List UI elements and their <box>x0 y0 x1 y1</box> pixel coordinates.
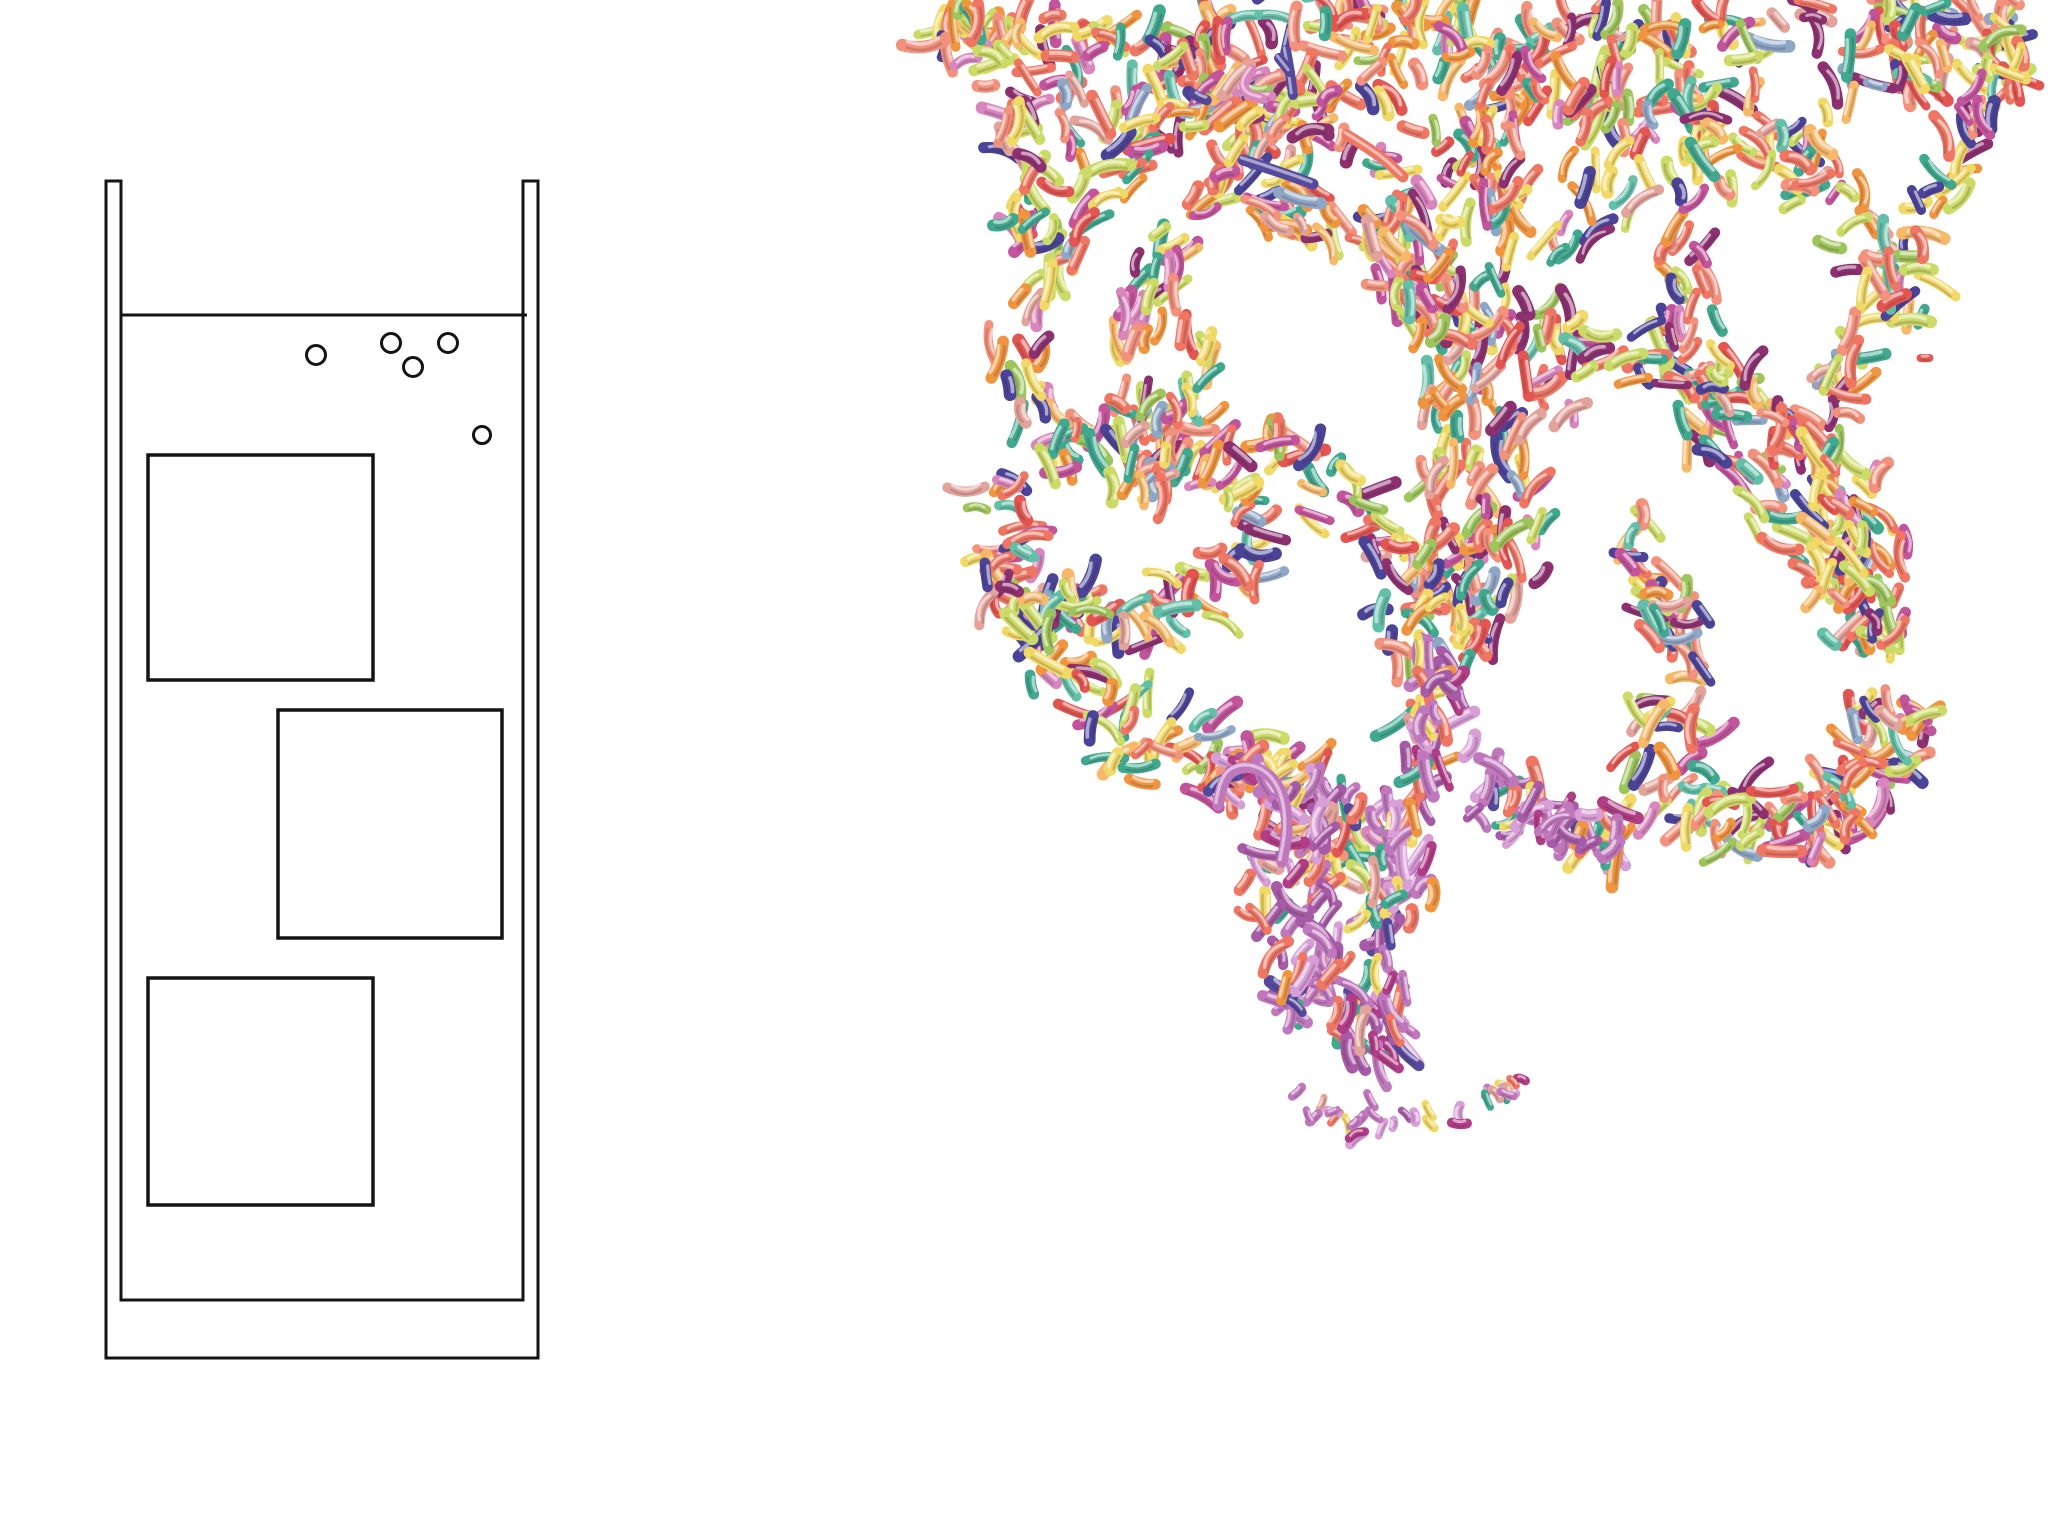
plume-particle <box>1123 762 1156 771</box>
plume-particle <box>1401 974 1409 1003</box>
plume-particle <box>1370 860 1378 903</box>
plume-particle <box>1394 38 1414 46</box>
plume-particle <box>1579 172 1592 203</box>
plume-particle <box>1778 125 1786 148</box>
plume-particle <box>1305 1110 1312 1122</box>
plume-particle <box>1671 673 1704 682</box>
plume-particle <box>1382 950 1390 968</box>
plume-particle <box>1230 49 1244 61</box>
plume-particle <box>1141 330 1149 349</box>
plume-particle <box>1044 13 1061 21</box>
plume-particle <box>1804 15 1823 22</box>
plume-particle <box>1028 675 1036 694</box>
plume-particle <box>1730 54 1758 63</box>
plume-particle <box>1859 526 1866 550</box>
plume-particle <box>1627 527 1637 545</box>
plume-particle <box>1658 724 1679 730</box>
plume-particle <box>1866 725 1875 743</box>
plume-particle <box>1047 53 1074 60</box>
plume-particle <box>1017 340 1030 358</box>
plume-particle <box>1416 637 1422 669</box>
plume-particle <box>1004 376 1013 395</box>
plume-stroke-right-basket <box>1611 689 1942 863</box>
plume-particle <box>1078 153 1087 169</box>
plume-particle <box>1292 1087 1302 1097</box>
plume-particle <box>1918 275 1955 297</box>
plume-particle <box>1763 847 1801 855</box>
plume-particle <box>1284 158 1299 168</box>
plume-particle <box>1624 94 1631 121</box>
plume-particle <box>1260 439 1295 449</box>
plume-particle <box>1406 286 1413 319</box>
viewport-window <box>278 710 502 938</box>
plume-particle <box>1072 175 1086 198</box>
plume-particle <box>1555 105 1562 124</box>
plume-particle <box>1833 516 1842 532</box>
plume-particle <box>1392 281 1401 307</box>
plume-particle <box>1419 461 1429 479</box>
plume-particle <box>1452 1120 1467 1126</box>
plume-particle <box>1675 184 1684 201</box>
plume-particle <box>1361 964 1371 989</box>
plume-particle <box>1206 406 1225 422</box>
plume-particle <box>1428 883 1437 907</box>
plume-particle <box>1386 975 1395 991</box>
plume-particle <box>1850 713 1860 740</box>
plume-particle <box>1483 120 1491 149</box>
plume-particle <box>1199 546 1222 556</box>
plume-particle <box>1366 1093 1375 1107</box>
plume-particle <box>1461 9 1471 41</box>
plume-particle <box>1818 239 1841 250</box>
plume-particle <box>1073 421 1079 438</box>
plume-particle <box>1262 21 1274 43</box>
plume-particle <box>1897 64 1905 86</box>
plume-particle <box>1344 144 1355 162</box>
plume-particle <box>1369 1110 1380 1120</box>
plume-particle <box>1562 150 1575 178</box>
particle-plume-visualization <box>902 0 2039 1145</box>
plume-particle <box>967 505 987 512</box>
plume-particle <box>1905 265 1933 273</box>
plume-particle <box>1668 327 1676 347</box>
plume-particle <box>1441 217 1459 226</box>
bubble-icon <box>474 427 491 444</box>
plume-particle <box>1286 1008 1294 1029</box>
plume-particle <box>1884 0 1893 19</box>
viewport-window <box>148 455 373 680</box>
plume-particle <box>1154 311 1165 341</box>
plume-particle <box>1081 560 1097 592</box>
plume-particle <box>1426 638 1432 673</box>
plume-particle <box>1214 21 1222 60</box>
plume-particle <box>1659 748 1676 774</box>
plume-particle <box>1577 365 1594 378</box>
plume-particle <box>1145 283 1156 310</box>
plume-particle <box>1838 410 1860 420</box>
plume-particle <box>1449 442 1457 484</box>
plume-particle <box>1677 310 1685 337</box>
plume-particle <box>1625 29 1635 52</box>
plume-particle <box>1488 266 1501 293</box>
plume-particle <box>1403 124 1424 135</box>
plume-particle <box>1146 571 1178 585</box>
plume-particle <box>1412 64 1424 84</box>
plume-particle <box>1431 118 1438 141</box>
plume-particle <box>1178 318 1187 345</box>
plume-particle <box>1867 81 1883 89</box>
plume-particle <box>1107 472 1117 502</box>
plume-particle <box>1328 1109 1337 1115</box>
plume-particle <box>1475 275 1489 288</box>
plume-particle <box>1657 52 1662 81</box>
plume-particle <box>1372 957 1381 992</box>
plume-particle <box>1933 200 1944 214</box>
plume-particle <box>1463 735 1477 757</box>
bubble-icon <box>307 346 326 365</box>
plume-particle <box>983 563 990 587</box>
plume-particle <box>1654 381 1688 387</box>
plume-particle <box>1132 252 1141 273</box>
plume-stroke-right-fringe <box>1684 106 1956 330</box>
plume-particle <box>1013 289 1026 303</box>
plume-particle <box>1351 798 1364 818</box>
plume-stroke-tail-scatter <box>1292 1076 1525 1145</box>
plume-particle <box>1751 71 1757 99</box>
plume-particle <box>1481 182 1489 226</box>
plume-particle <box>1171 619 1186 633</box>
plume-particle <box>1179 739 1196 750</box>
tank-schematic <box>106 181 538 1358</box>
plume-particle <box>1499 583 1509 603</box>
plume-particle <box>978 82 995 89</box>
plume-particle <box>1162 447 1169 463</box>
plume-particle <box>1460 155 1471 172</box>
plume-particle <box>1391 1120 1396 1128</box>
plume-particle <box>1584 329 1616 340</box>
plume-particle <box>1206 615 1239 635</box>
plume-stroke-tail-right-cluster <box>1467 754 1637 888</box>
plume-particle <box>1129 777 1155 786</box>
plume-particle <box>1453 416 1460 437</box>
plume-particle <box>1660 779 1667 799</box>
plume-particle <box>1046 218 1056 241</box>
plume-particle <box>1184 123 1204 130</box>
plume-particle <box>1924 159 1952 185</box>
plume-particle <box>1542 314 1552 340</box>
plume-particle <box>1771 13 1785 28</box>
plume-particle <box>1001 585 1019 594</box>
plume-particle <box>1645 589 1668 598</box>
plume-particle <box>1116 27 1123 56</box>
plume-particle <box>1687 709 1696 747</box>
plume-particle <box>1322 11 1329 35</box>
plume-particle <box>1060 84 1069 104</box>
plume-particle <box>1216 169 1234 179</box>
plume-particle <box>1058 113 1067 138</box>
plume-particle <box>1456 1105 1462 1120</box>
plume-particle <box>1845 85 1856 119</box>
plume-particle <box>1171 692 1189 719</box>
plume-particle <box>1806 590 1820 607</box>
plume-particle <box>1239 874 1252 890</box>
plume-particle <box>1044 614 1053 651</box>
plume-particle <box>1482 772 1493 801</box>
plume-particle <box>1855 173 1867 208</box>
plume-particle <box>1145 672 1152 713</box>
plume-particle <box>1639 505 1647 525</box>
plume-particle <box>1401 1110 1410 1119</box>
plume-stroke-canopy-wisp <box>993 101 1069 251</box>
plume-particle <box>1483 497 1488 515</box>
plume-particle <box>1018 501 1029 520</box>
viewport-window <box>148 978 373 1205</box>
plume-particle <box>1988 102 1997 129</box>
plume-particle <box>1614 66 1619 92</box>
plume-particle <box>1751 787 1794 795</box>
plume-particle <box>902 38 945 50</box>
plume-particle <box>1436 62 1446 79</box>
plume-particle <box>1874 463 1889 487</box>
plume-particle <box>1371 1035 1377 1051</box>
plume-particle <box>1579 114 1589 142</box>
plume-particle <box>1520 440 1527 475</box>
figure-canvas <box>0 0 2048 1536</box>
plume-particle <box>1934 13 1965 23</box>
plume-stroke-below-claw <box>1078 672 1395 891</box>
plume-particle <box>1319 1097 1326 1108</box>
plume-particle <box>1536 329 1544 348</box>
plume-particle <box>1749 382 1760 404</box>
plume-particle <box>1845 34 1853 77</box>
plume-particle <box>1023 595 1043 603</box>
plume-particle <box>1921 356 1930 360</box>
plume-particle <box>1291 7 1300 46</box>
plume-particle <box>1366 282 1386 289</box>
bubble-icon <box>439 334 458 353</box>
plume-particle <box>1581 812 1597 819</box>
plume-particle <box>1517 291 1531 314</box>
bubble-icon <box>382 334 401 353</box>
plume-particle <box>1252 732 1284 742</box>
plume-particle <box>1412 1112 1418 1122</box>
plume-particle <box>1087 716 1095 741</box>
plume-particle <box>1784 199 1801 210</box>
plume-stroke-curl-inner <box>1614 505 1711 683</box>
plume-particle <box>1361 482 1396 498</box>
plume-particle <box>1264 860 1279 871</box>
plume-particle <box>1683 808 1691 846</box>
plume-particle <box>1687 292 1698 320</box>
plume-particle <box>1376 594 1387 626</box>
plume-particle <box>1121 616 1128 646</box>
plume-particle <box>1470 401 1479 434</box>
plume-particle <box>1711 310 1723 332</box>
plume-particle <box>1483 595 1494 610</box>
plume-particle <box>1106 684 1115 700</box>
plume-particle <box>1170 278 1178 311</box>
plume-particle <box>1458 608 1466 632</box>
plume-particle <box>1674 619 1700 627</box>
plume-particle <box>1534 568 1548 584</box>
plume-particle <box>1933 116 1950 156</box>
plume-particle <box>1088 46 1103 58</box>
plume-particle <box>1821 103 1830 122</box>
plume-particle <box>947 484 984 494</box>
plume-particle <box>1403 746 1409 769</box>
plume-particle <box>1665 162 1676 181</box>
plume-particle <box>1416 712 1426 738</box>
plume-particle <box>1266 177 1281 185</box>
plume-particle <box>1226 491 1232 508</box>
plume-particle <box>1517 1076 1525 1082</box>
bubble-icon <box>404 358 423 377</box>
plume-particle <box>1604 172 1614 193</box>
plume-particle <box>1841 186 1854 198</box>
plume-particle <box>1509 127 1521 155</box>
plume-particle <box>1836 267 1858 275</box>
plume-particle <box>1222 22 1230 51</box>
plume-particle <box>1378 1122 1386 1136</box>
plume-particle <box>1407 910 1416 928</box>
plume-particle <box>1683 784 1701 792</box>
plume-particle <box>1391 805 1399 833</box>
plume-particle <box>1778 526 1811 542</box>
plume-particle <box>1249 528 1286 541</box>
plume-particle <box>1385 923 1392 946</box>
plume-particle <box>1858 352 1885 361</box>
plume-particle <box>1387 542 1414 551</box>
figure-page <box>0 0 2048 1536</box>
plume-particle <box>1521 356 1531 397</box>
